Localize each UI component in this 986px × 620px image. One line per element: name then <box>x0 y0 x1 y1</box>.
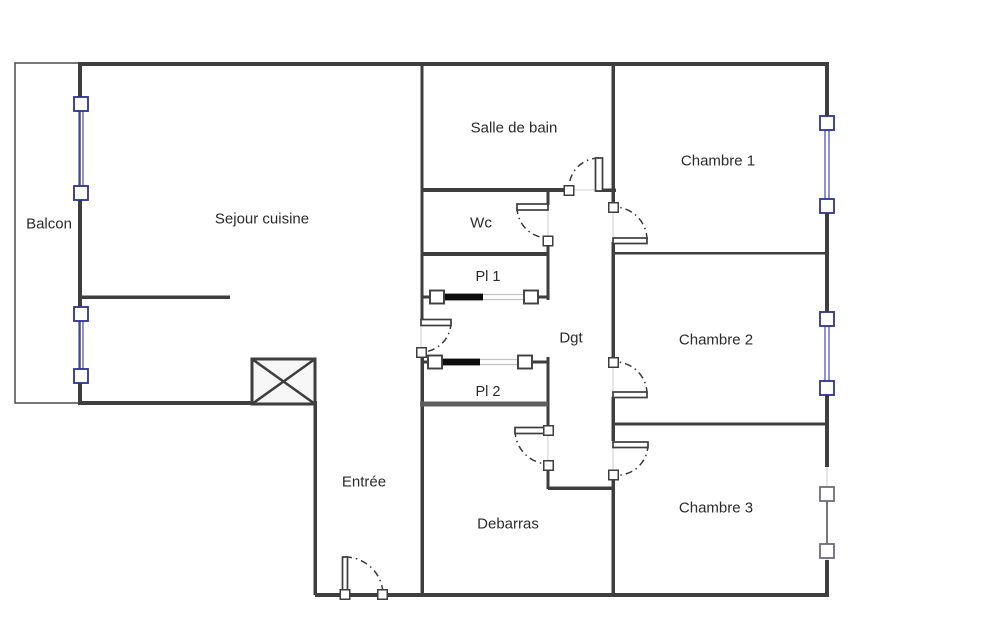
room-label-dgt: Dgt <box>559 330 583 347</box>
room-label-sejour-cuisine: Sejour cuisine <box>215 211 309 228</box>
room-label-pl2: Pl 2 <box>476 384 501 400</box>
window-end-square <box>74 369 88 383</box>
door-jamb-square <box>417 348 427 358</box>
door-leaf <box>613 392 647 398</box>
room-label-wc: Wc <box>470 215 492 232</box>
chambre2-window-icon <box>820 312 834 395</box>
door-jamb-square <box>609 358 619 368</box>
window-end-square <box>820 487 834 501</box>
room-label-debarras: Debarras <box>477 516 539 533</box>
chambre3-door-icon <box>609 442 648 480</box>
balcony-outline <box>15 63 80 403</box>
shaft-box <box>252 359 315 404</box>
slider-leaf-bar <box>442 359 480 366</box>
window-end-square <box>74 97 88 111</box>
door-leaf <box>613 442 648 448</box>
floor-plan-svg: BalconSejour cuisineSalle de bainWcPl 1P… <box>0 0 986 620</box>
balcony-rect <box>15 63 80 403</box>
door-jamb-square <box>609 470 619 480</box>
floor-plan-canvas: BalconSejour cuisineSalle de bainWcPl 1P… <box>0 0 986 620</box>
window-end-square <box>820 381 834 395</box>
room-label-entree: Entrée <box>342 474 386 491</box>
slider-end-square <box>518 356 532 369</box>
door-swing-arc <box>517 207 548 238</box>
pl2-sliding-door-icon <box>428 356 532 369</box>
room-label-chambre-3: Chambre 3 <box>679 500 753 517</box>
room-label-chambre-2: Chambre 2 <box>679 332 753 349</box>
sejour-dgt-door-icon <box>417 320 451 358</box>
sliding-doors <box>428 291 538 369</box>
room-label-chambre-1: Chambre 1 <box>681 153 755 170</box>
window-end-square <box>820 116 834 130</box>
slider-end-square <box>428 356 442 369</box>
pl1-sliding-door-icon <box>430 291 538 304</box>
window-end-square <box>820 544 834 558</box>
window-end-square <box>820 199 834 213</box>
entrance-door-icon <box>340 557 387 599</box>
door-jamb-square <box>609 203 619 213</box>
room-label-pl1: Pl 1 <box>476 269 501 285</box>
door-leaf <box>421 320 451 326</box>
door-jamb-square <box>340 590 350 600</box>
window-end-square <box>74 186 88 200</box>
wc-door-icon <box>517 204 553 246</box>
door-jamb-square <box>544 461 554 471</box>
walls <box>78 62 829 597</box>
door-jamb-square <box>564 186 574 196</box>
slider-end-square <box>524 291 538 304</box>
slider-leaf-bar <box>444 294 483 301</box>
chambre1-window-icon <box>820 116 834 213</box>
window-end-square <box>74 307 88 321</box>
room-labels: BalconSejour cuisineSalle de bainWcPl 1P… <box>26 120 755 533</box>
slider-end-square <box>430 291 444 304</box>
door-jamb-square <box>544 426 554 436</box>
chambre2-door-icon <box>609 358 647 398</box>
chambre1-door-icon <box>609 203 647 244</box>
chambre3-window-icon <box>820 487 834 558</box>
door-leaf <box>517 204 548 210</box>
room-label-salle-de-bain: Salle de bain <box>471 120 558 137</box>
door-jamb-square <box>543 236 553 246</box>
door-leaf <box>596 158 603 191</box>
door-swing-arc <box>569 158 599 188</box>
swing-doors <box>340 158 648 599</box>
door-leaf <box>613 238 647 244</box>
room-label-balcon: Balcon <box>26 216 72 233</box>
window-end-square <box>820 312 834 326</box>
door-jamb-square <box>378 590 388 600</box>
